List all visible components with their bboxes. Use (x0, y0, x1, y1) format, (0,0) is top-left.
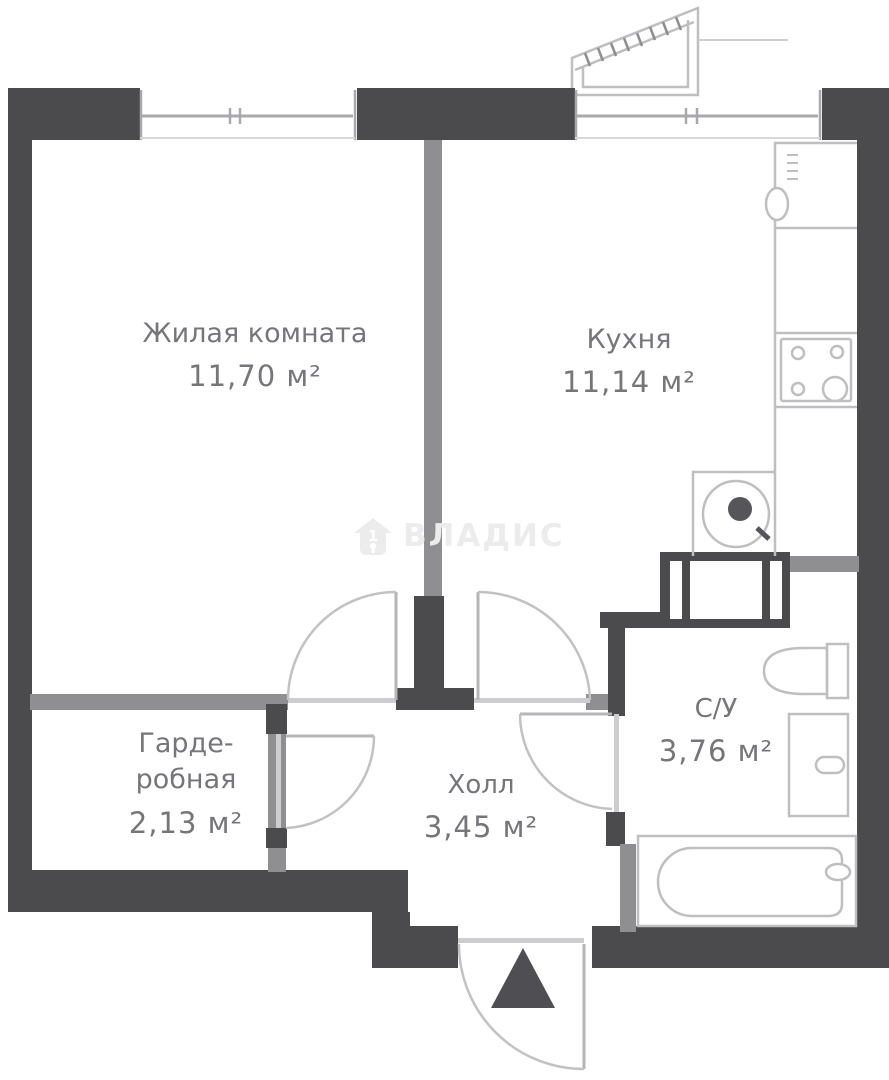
watermark-digit: 1 (368, 527, 378, 545)
wardrobe-door (286, 736, 374, 828)
room-name: Жилая комната (95, 316, 415, 352)
bathroom-fixtures (638, 644, 856, 926)
wardrobe-door-stub-top (266, 704, 287, 734)
house-1-keyhole-icon: 1 (352, 516, 394, 556)
washing-machine (693, 472, 775, 556)
room-area: 11,70 м² (95, 359, 415, 393)
wall-bathroom-west-upper (608, 614, 625, 716)
wardrobe-door-stub-bottom (266, 828, 287, 848)
toilet (764, 644, 848, 698)
wall-bathroom-north (600, 612, 664, 628)
room-area: 3,76 м² (640, 734, 792, 768)
room-area: 2,13 м² (118, 806, 254, 840)
room-name: С/У (640, 692, 792, 727)
wall-living-south (30, 694, 288, 710)
room-area: 11,14 м² (515, 365, 743, 399)
room-name: Холл (400, 768, 562, 803)
bathroom-sink (789, 714, 848, 816)
bathtub-faucet (826, 864, 850, 880)
watermark-text: ВЛАДИС (403, 518, 565, 554)
bathtub (638, 836, 856, 926)
wall-bathroom-west-lower (620, 844, 636, 932)
wall-stub-between-doors (414, 596, 444, 700)
kitchen-door (478, 592, 590, 700)
watermark: 1 ВЛАДИС (352, 516, 565, 556)
balcony (572, 8, 788, 95)
room-name: Гарде-робная (134, 726, 238, 799)
window-kitchen (575, 90, 820, 140)
kitchen-sink-unit (766, 155, 798, 220)
stove (781, 339, 851, 401)
wall-bathroom-door-stub (606, 812, 625, 846)
wall-bathroom-north-east (781, 556, 859, 572)
window-living-room (140, 90, 355, 140)
room-label-wardrobe: Гарде-робная 2,13 м² (118, 726, 254, 840)
floor-plan: 1 ВЛАДИС Жилая комната 11,70 м² Кухня 11… (0, 0, 889, 1080)
entrance-arrow (491, 948, 555, 1008)
room-area: 3,45 м² (400, 810, 562, 844)
room-label-kitchen: Кухня 11,14 м² (515, 322, 743, 399)
room-label-hall: Холл 3,45 м² (400, 768, 562, 844)
vent-shaft (660, 552, 790, 628)
room-label-living: Жилая комната 11,70 м² (95, 316, 415, 393)
living-room-door (288, 592, 396, 700)
wall-stub-base (396, 688, 474, 710)
room-label-bathroom: С/У 3,76 м² (640, 692, 792, 768)
room-name: Кухня (515, 322, 743, 358)
